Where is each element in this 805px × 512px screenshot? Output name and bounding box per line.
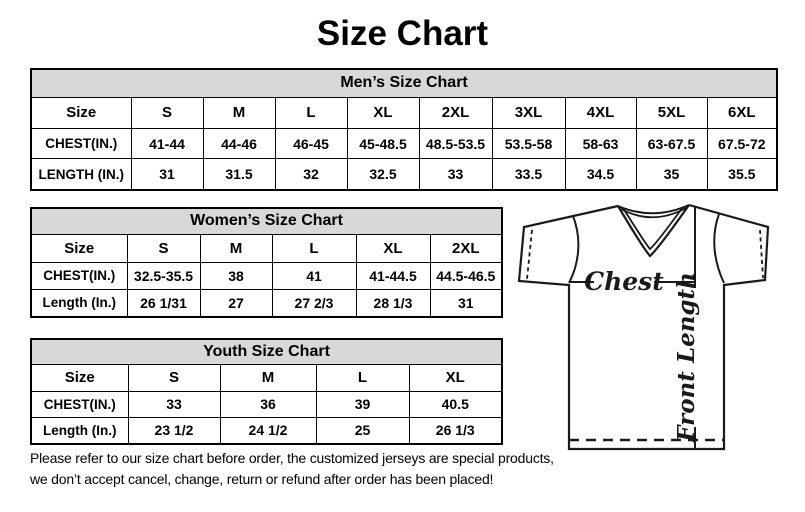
- chest-value: 38: [200, 262, 272, 289]
- front-length-label: Front Length: [673, 272, 700, 443]
- size-col-header: L: [272, 234, 356, 262]
- length-value: 33.5: [492, 159, 565, 190]
- size-col-header: M: [200, 234, 272, 262]
- chest-value: 46-45: [275, 129, 347, 159]
- size-chart-page: Size Chart Men’s Size Chart Size S M L X…: [0, 0, 805, 512]
- length-value: 24 1/2: [220, 417, 316, 444]
- chest-value: 48.5-53.5: [419, 129, 492, 159]
- chest-value: 53.5-58: [492, 129, 565, 159]
- mens-size-table: Men’s Size Chart Size S M L XL 2XL 3XL 4…: [30, 68, 778, 191]
- length-value: 33: [419, 159, 492, 190]
- chest-value: 63-67.5: [636, 129, 707, 159]
- size-row-label: Size: [31, 97, 131, 129]
- length-value: 25: [316, 417, 409, 444]
- length-value: 32: [275, 159, 347, 190]
- length-value: 26 1/3: [409, 417, 502, 444]
- length-value: 23 1/2: [128, 417, 220, 444]
- size-col-header: XL: [356, 234, 430, 262]
- size-col-header: S: [127, 234, 200, 262]
- chest-value: 33: [128, 391, 220, 417]
- length-value: 28 1/3: [356, 289, 430, 317]
- size-col-header: 2XL: [419, 97, 492, 129]
- size-col-header: 3XL: [492, 97, 565, 129]
- length-value: 34.5: [565, 159, 636, 190]
- size-col-header: 2XL: [430, 234, 502, 262]
- length-value: 35: [636, 159, 707, 190]
- size-row-label: Size: [31, 364, 128, 391]
- youth-table-header: Youth Size Chart: [31, 339, 502, 364]
- length-value: 27 2/3: [272, 289, 356, 317]
- page-title: Size Chart: [0, 14, 805, 54]
- length-row-label: Length (In.): [31, 417, 128, 444]
- size-col-header: L: [316, 364, 409, 391]
- length-value: 31: [131, 159, 203, 190]
- length-value: 26 1/31: [127, 289, 200, 317]
- length-value: 31.5: [203, 159, 275, 190]
- length-row-label: Length (In.): [31, 289, 127, 317]
- chest-value: 32.5-35.5: [127, 262, 200, 289]
- footer-note-line1: Please refer to our size chart before or…: [30, 448, 570, 469]
- chest-value: 36: [220, 391, 316, 417]
- youth-size-table: Youth Size Chart Size S M L XL CHEST(IN.…: [30, 338, 503, 445]
- chest-row-label: CHEST(IN.): [31, 129, 131, 159]
- tshirt-outline: [519, 205, 768, 449]
- size-col-header: 6XL: [707, 97, 777, 129]
- chest-value: 58-63: [565, 129, 636, 159]
- chest-row-label: CHEST(IN.): [31, 262, 127, 289]
- length-value: 32.5: [347, 159, 419, 190]
- womens-table-header: Women’s Size Chart: [31, 208, 502, 234]
- chest-value: 45-48.5: [347, 129, 419, 159]
- mens-table-header: Men’s Size Chart: [31, 69, 777, 97]
- chest-value: 41-44: [131, 129, 203, 159]
- chest-value: 40.5: [409, 391, 502, 417]
- size-row-label: Size: [31, 234, 127, 262]
- chest-label: Chest: [584, 267, 664, 296]
- womens-size-table: Women’s Size Chart Size S M L XL 2XL CHE…: [30, 207, 503, 318]
- length-value: 31: [430, 289, 502, 317]
- footer-note: Please refer to our size chart before or…: [30, 448, 570, 489]
- footer-note-line2: we don’t accept cancel, change, return o…: [30, 469, 570, 490]
- size-col-header: M: [203, 97, 275, 129]
- length-row-label: LENGTH (IN.): [31, 159, 131, 190]
- chest-value: 41: [272, 262, 356, 289]
- chest-value: 41-44.5: [356, 262, 430, 289]
- length-value: 35.5: [707, 159, 777, 190]
- size-col-header: 5XL: [636, 97, 707, 129]
- size-col-header: M: [220, 364, 316, 391]
- size-col-header: L: [275, 97, 347, 129]
- size-col-header: XL: [347, 97, 419, 129]
- chest-value: 67.5-72: [707, 129, 777, 159]
- size-col-header: 4XL: [565, 97, 636, 129]
- chest-value: 39: [316, 391, 409, 417]
- chest-row-label: CHEST(IN.): [31, 391, 128, 417]
- size-col-header: S: [128, 364, 220, 391]
- tshirt-diagram: Chest Front Length: [511, 193, 805, 457]
- size-col-header: S: [131, 97, 203, 129]
- length-value: 27: [200, 289, 272, 317]
- chest-value: 44-46: [203, 129, 275, 159]
- chest-value: 44.5-46.5: [430, 262, 502, 289]
- size-col-header: XL: [409, 364, 502, 391]
